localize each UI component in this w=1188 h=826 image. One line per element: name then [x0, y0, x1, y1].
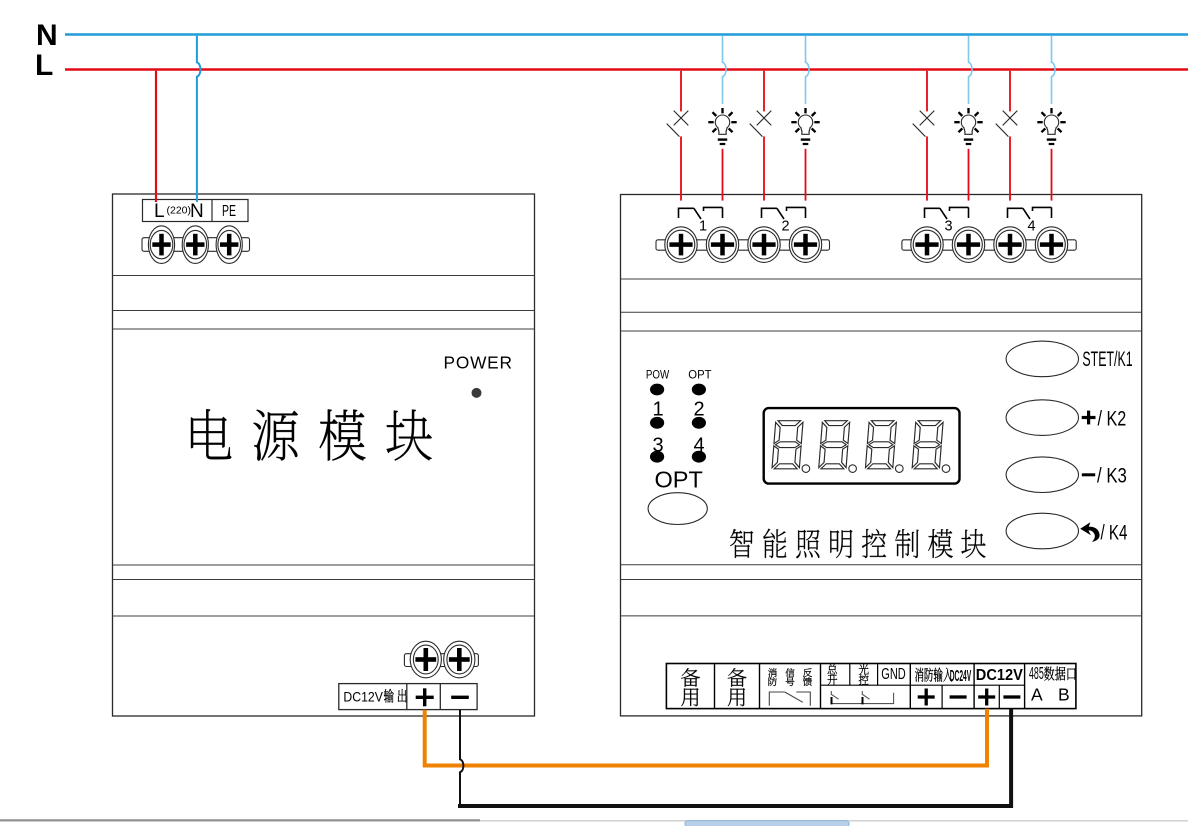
svg-text:3: 3 [945, 218, 953, 234]
svg-text:DC12V: DC12V [343, 688, 383, 704]
svg-text:485: 485 [1029, 663, 1044, 683]
svg-text:STET/K1: STET/K1 [1082, 348, 1132, 371]
svg-text:1: 1 [699, 218, 707, 234]
svg-text:OPT: OPT [688, 369, 711, 381]
svg-text:4: 4 [1028, 218, 1036, 234]
svg-text:PE: PE [222, 203, 236, 220]
svg-text:A: A [1031, 685, 1043, 705]
svg-text:2: 2 [782, 218, 790, 234]
svg-text:N: N [190, 201, 204, 222]
svg-text:OPT: OPT [655, 466, 703, 492]
svg-text:/ K4: / K4 [1101, 522, 1128, 545]
svg-text:/ K3: / K3 [1097, 465, 1127, 488]
svg-text:/ K2: / K2 [1098, 407, 1127, 430]
svg-text:DC24V: DC24V [950, 668, 972, 685]
svg-text:POW: POW [646, 369, 669, 381]
svg-text:B: B [1058, 685, 1070, 705]
svg-text:(220): (220) [167, 205, 192, 217]
svg-text:GND: GND [881, 666, 905, 683]
svg-text:L: L [154, 201, 165, 222]
svg-text:POWER: POWER [444, 353, 513, 373]
svg-text:L: L [35, 49, 53, 82]
svg-text:N: N [36, 19, 58, 52]
svg-text:DC12V: DC12V [976, 667, 1023, 684]
